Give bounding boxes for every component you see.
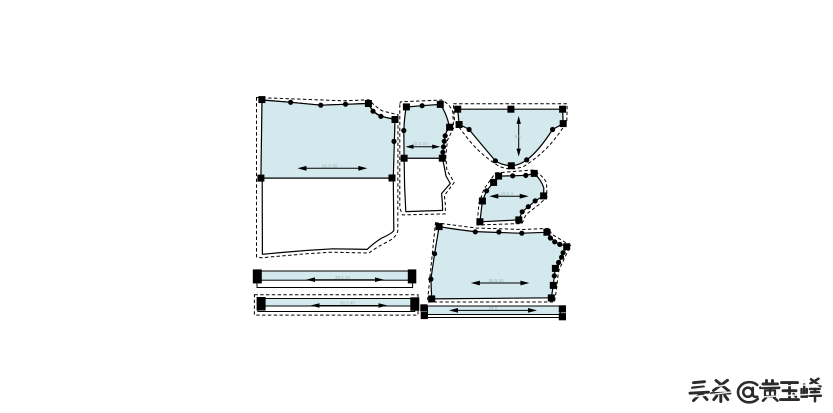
svg-text:38.5 40: 38.5 40 [335, 275, 351, 280]
svg-text:55.8 38: 55.8 38 [322, 164, 338, 169]
svg-text:38.5 40: 38.5 40 [340, 301, 356, 306]
svg-text:15.2 4: 15.2 4 [501, 191, 514, 196]
svg-text:9.5: 9.5 [515, 134, 522, 139]
svg-text:24.5: 24.5 [489, 306, 498, 311]
svg-text:18.3 20: 18.3 20 [413, 141, 429, 146]
svg-text:28.5 30: 28.5 30 [489, 278, 505, 283]
